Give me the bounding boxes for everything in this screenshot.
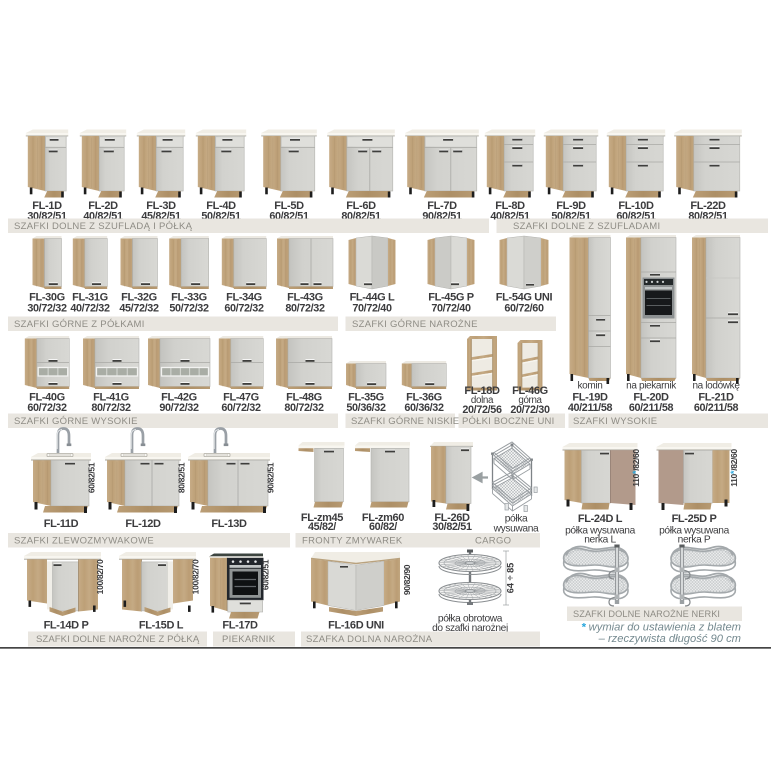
svg-text:60/72/60: 60/72/60 [504,303,544,315]
svg-text:70/72/40: 70/72/40 [352,303,392,315]
svg-text:60/72/32: 60/72/32 [224,303,264,315]
svg-text:80/72/32: 80/72/32 [91,402,131,414]
svg-text:na lodówkę: na lodówkę [692,381,740,392]
svg-text:nerka P: nerka P [678,535,711,546]
svg-text:90/72/32: 90/72/32 [159,402,199,414]
svg-text:wysuwana: wysuwana [493,524,539,535]
svg-text:SZAFKI DOLNE Z SZUFLADĄ I PÓŁK: SZAFKI DOLNE Z SZUFLADĄ I PÓŁKĄ [14,221,193,232]
svg-text:60/82/51: 60/82/51 [87,462,97,493]
svg-text:60/211/58: 60/211/58 [629,402,674,414]
svg-text:60/36/32: 60/36/32 [404,402,444,414]
svg-text:45/72/32: 45/72/32 [119,303,159,315]
svg-text:64 ÷ 85: 64 ÷ 85 [506,563,516,594]
svg-text:FL-15D L: FL-15D L [139,620,184,632]
svg-text:SZAFKI GÓRNE WYSOKIE: SZAFKI GÓRNE WYSOKIE [14,416,138,427]
svg-text:90/82/90: 90/82/90 [402,564,412,595]
svg-text:FL-12D: FL-12D [125,518,161,530]
svg-text:FL-17D: FL-17D [222,620,258,632]
svg-text:SZAFKI DOLNE NAROŻNE Z PÓŁKĄ: SZAFKI DOLNE NAROŻNE Z PÓŁKĄ [36,634,200,645]
svg-text:30/82/51: 30/82/51 [432,521,472,533]
svg-text:FL-24D L: FL-24D L [578,513,623,525]
svg-text:70/72/40: 70/72/40 [431,303,471,315]
svg-text:30/72/32: 30/72/32 [27,303,67,315]
svg-text:50/72/32: 50/72/32 [169,303,209,315]
svg-text:SZAFKI ZLEWOZMYWAKOWE: SZAFKI ZLEWOZMYWAKOWE [14,536,154,547]
svg-text:60/82/51: 60/82/51 [261,559,271,590]
svg-text:100/82/70: 100/82/70 [191,559,201,594]
svg-text:80/72/32: 80/72/32 [284,402,324,414]
svg-text:PÓŁKI BOCZNE UNI: PÓŁKI BOCZNE UNI [462,416,554,427]
svg-text:FL-14D P: FL-14D P [44,620,89,632]
svg-text:110*/82/60: 110*/82/60 [729,449,740,487]
svg-text:– rzeczywista długość 90 cm: – rzeczywista długość 90 cm [598,633,741,645]
svg-text:na piekarnik: na piekarnik [626,381,677,392]
svg-text:80/72/32: 80/72/32 [285,303,325,315]
svg-text:FL-13D: FL-13D [211,518,247,530]
svg-text:80/82/51: 80/82/51 [177,462,187,493]
svg-text:SZAFKI DOLNE Z SZUFLADAMI: SZAFKI DOLNE Z SZUFLADAMI [513,221,660,232]
svg-text:60/82/: 60/82/ [369,521,397,533]
svg-text:FRONTY ZMYWAREK: FRONTY ZMYWAREK [302,536,403,547]
svg-text:nerka L: nerka L [584,535,616,546]
svg-text:SZAFKI GÓRNE Z PÓŁKAMI: SZAFKI GÓRNE Z PÓŁKAMI [14,319,145,330]
svg-text:SZAFKI GÓRNE NISKIE: SZAFKI GÓRNE NISKIE [351,416,459,427]
svg-text:40/72/32: 40/72/32 [70,303,110,315]
svg-text:40/211/58: 40/211/58 [568,402,613,414]
svg-text:SZAFKA DOLNA NAROŻNA: SZAFKA DOLNA NAROŻNA [306,634,433,645]
svg-text:FL-11D: FL-11D [44,518,79,530]
svg-text:45/82/: 45/82/ [308,521,336,533]
svg-text:* wymiar do ustawienia z blate: * wymiar do ustawienia z blatem [581,622,741,634]
svg-text:FL-25D P: FL-25D P [672,513,717,525]
svg-text:SZAFKI WYSOKIE: SZAFKI WYSOKIE [573,416,657,427]
svg-text:110*/82/60: 110*/82/60 [631,449,642,487]
svg-text:PIEKARNIK: PIEKARNIK [222,634,276,645]
svg-text:60/72/32: 60/72/32 [27,402,67,414]
svg-text:FL-16D UNI: FL-16D UNI [328,620,384,632]
svg-text:komin: komin [578,381,603,392]
svg-text:50/36/32: 50/36/32 [346,402,386,414]
svg-text:SZAFKI DOLNE NAROŻNE NERKI: SZAFKI DOLNE NAROŻNE NERKI [573,609,720,619]
svg-text:SZAFKI GÓRNE NAROŻNE: SZAFKI GÓRNE NAROŻNE [352,319,478,330]
svg-text:60/72/32: 60/72/32 [221,402,261,414]
svg-text:CARGO: CARGO [475,536,511,547]
svg-text:60/211/58: 60/211/58 [694,402,739,414]
svg-text:100/82/70: 100/82/70 [95,559,105,594]
svg-text:90/82/51: 90/82/51 [266,462,276,493]
